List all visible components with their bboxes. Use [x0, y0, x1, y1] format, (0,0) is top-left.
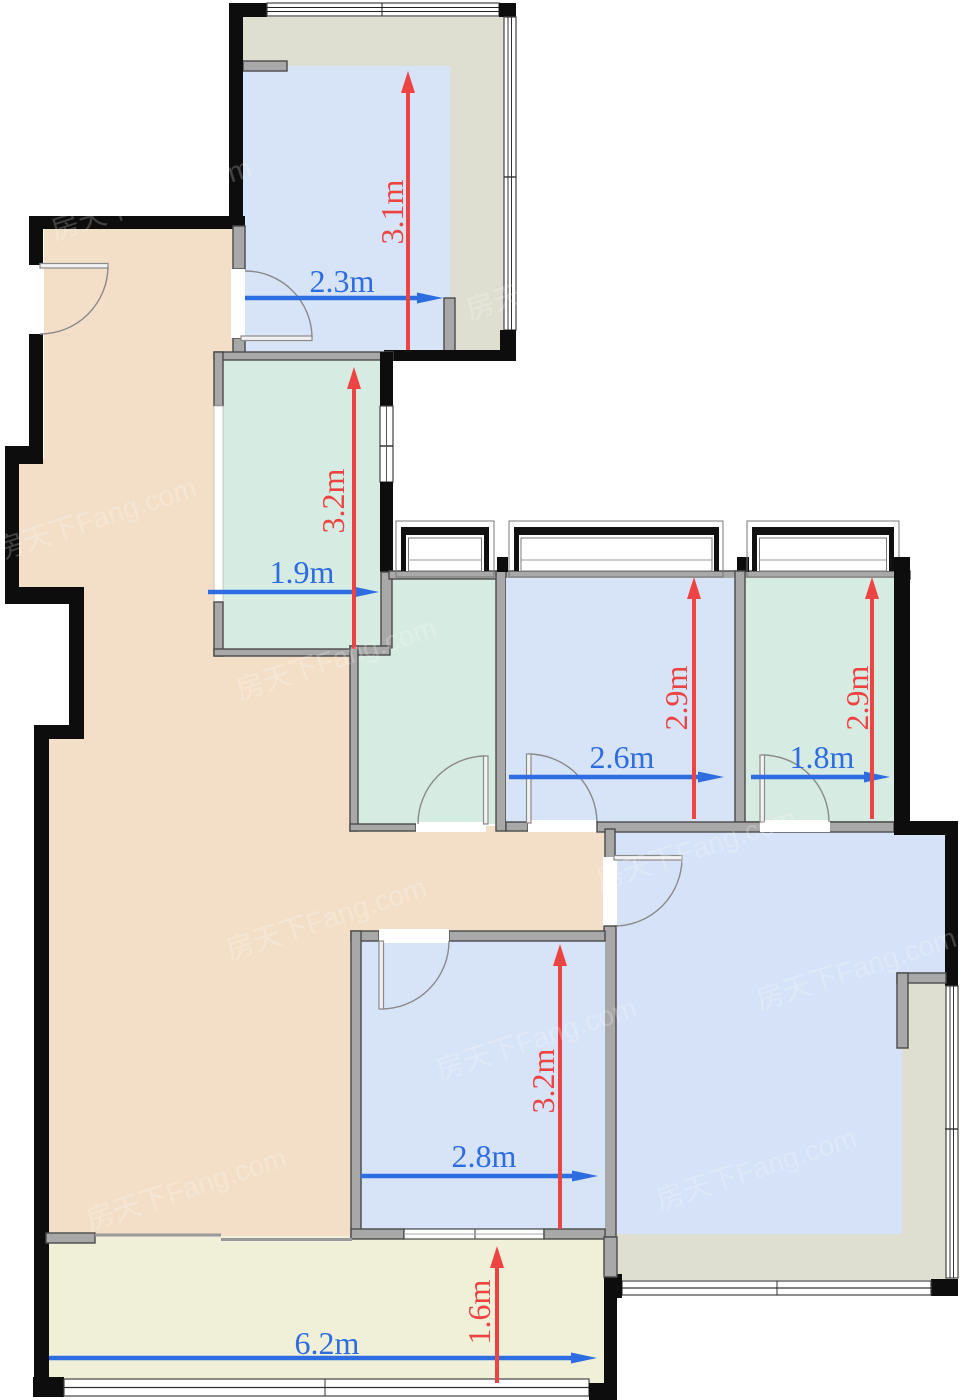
- svg-text:2.8m: 2.8m: [452, 1138, 517, 1174]
- svg-text:6.2m: 6.2m: [295, 1325, 360, 1361]
- svg-text:3.2m: 3.2m: [315, 468, 351, 533]
- svg-text:2.9m: 2.9m: [839, 665, 875, 730]
- svg-text:1.9m: 1.9m: [270, 554, 335, 590]
- svg-text:1.6m: 1.6m: [461, 1279, 497, 1344]
- svg-text:2.6m: 2.6m: [590, 739, 655, 775]
- svg-text:2.3m: 2.3m: [310, 263, 375, 299]
- svg-text:2.9m: 2.9m: [658, 665, 694, 730]
- svg-text:3.2m: 3.2m: [525, 1048, 561, 1113]
- svg-text:1.8m: 1.8m: [790, 739, 855, 775]
- svg-text:3.1m: 3.1m: [374, 179, 410, 244]
